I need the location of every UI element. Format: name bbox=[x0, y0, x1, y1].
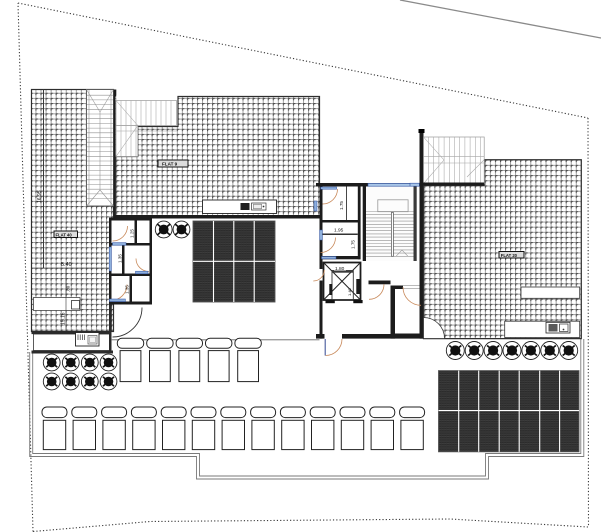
svg-text:1.35: 1.35 bbox=[125, 285, 130, 294]
svg-text:1.75: 1.75 bbox=[339, 201, 344, 210]
svg-text:1.75: 1.75 bbox=[351, 240, 356, 249]
svg-text:1.95: 1.95 bbox=[334, 228, 344, 234]
svg-text:1.35: 1.35 bbox=[118, 254, 123, 263]
svg-text:1.80: 1.80 bbox=[335, 266, 345, 272]
svg-text:1.25: 1.25 bbox=[130, 229, 135, 238]
svg-text:FLAT 20: FLAT 20 bbox=[501, 253, 518, 258]
svg-text:.80: .80 bbox=[66, 285, 71, 292]
svg-text:1.40: 1.40 bbox=[347, 287, 352, 296]
svg-text:16.95: 16.95 bbox=[37, 190, 43, 203]
svg-text:15.16: 15.16 bbox=[61, 312, 67, 325]
svg-text:FLAT 9: FLAT 9 bbox=[162, 162, 178, 167]
svg-text:5.40: 5.40 bbox=[61, 262, 72, 268]
svg-text:FLAT 40: FLAT 40 bbox=[56, 232, 73, 237]
